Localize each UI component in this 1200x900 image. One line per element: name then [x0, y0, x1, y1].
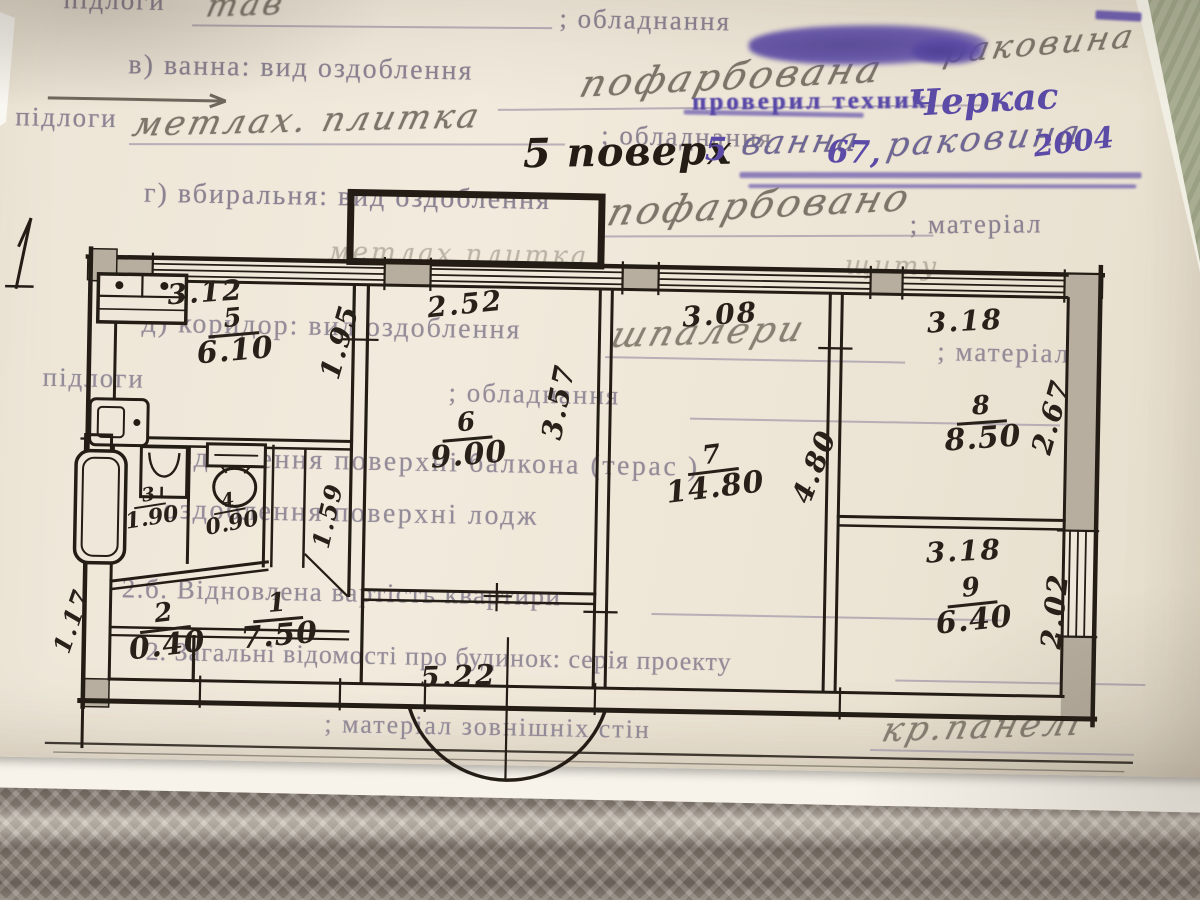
room-area: 8.50 — [933, 420, 1033, 457]
kitchen-sink-icon — [89, 399, 148, 446]
dim-bottom: 5.22 — [420, 658, 497, 694]
balcony-outline — [350, 192, 602, 266]
paper-fold-line2 — [54, 752, 1124, 772]
dimension-extension-line — [505, 638, 508, 780]
room-label-8: 8 8.50 — [931, 390, 1033, 458]
paper-fold-line — [46, 743, 1132, 763]
dim-room7-top: 3.08 — [681, 296, 759, 334]
dim-room9-top: 3.18 — [925, 533, 1003, 570]
page-content: підлоги тав ; обладнання раковина в) ван… — [0, 0, 1200, 900]
room-area: 6.10 — [187, 332, 284, 371]
dim-room8-top: 3.18 — [926, 303, 1004, 340]
room-label-9: 9 6.40 — [916, 569, 1030, 641]
room-label-2: 2 0.40 — [115, 595, 217, 667]
room-label-5: 5 6.10 — [184, 301, 284, 370]
photo-scene: підлоги тав ; обладнання раковина в) ван… — [0, 0, 1200, 900]
dim-kitchen-top: 3.12 — [166, 273, 244, 311]
bottom-wall — [79, 675, 1095, 766]
room-label-6: 6 9.00 — [415, 405, 520, 475]
right-wall — [1054, 266, 1102, 725]
room-label-1: 1 7.50 — [226, 586, 331, 656]
north-arrow-icon — [6, 219, 33, 287]
